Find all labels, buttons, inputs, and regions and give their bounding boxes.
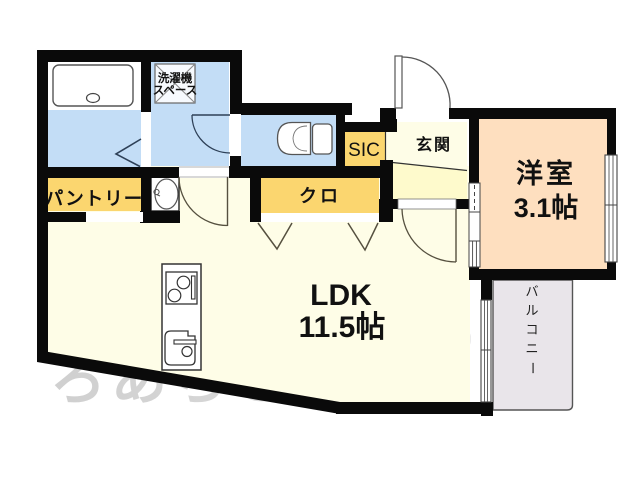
svg-text:スペース: スペース (153, 85, 198, 97)
svg-text:洗濯機: 洗濯機 (158, 71, 193, 85)
svg-text:パントリー: パントリー (45, 188, 143, 209)
svg-text:11.5帖: 11.5帖 (299, 311, 386, 344)
svg-text:洋室: 洋室 (516, 158, 576, 189)
svg-text:玄関: 玄関 (416, 135, 452, 154)
svg-text:SIC: SIC (348, 140, 380, 161)
svg-text:ニ: ニ (525, 341, 538, 356)
svg-text:LDK: LDK (310, 279, 372, 312)
svg-text:ー: ー (525, 361, 540, 374)
svg-text:3.1帖: 3.1帖 (514, 193, 579, 223)
svg-text:クロ: クロ (299, 186, 341, 206)
svg-text:ル: ル (525, 303, 538, 318)
svg-text:コ: コ (525, 322, 538, 337)
svg-text:バ: バ (525, 284, 538, 299)
